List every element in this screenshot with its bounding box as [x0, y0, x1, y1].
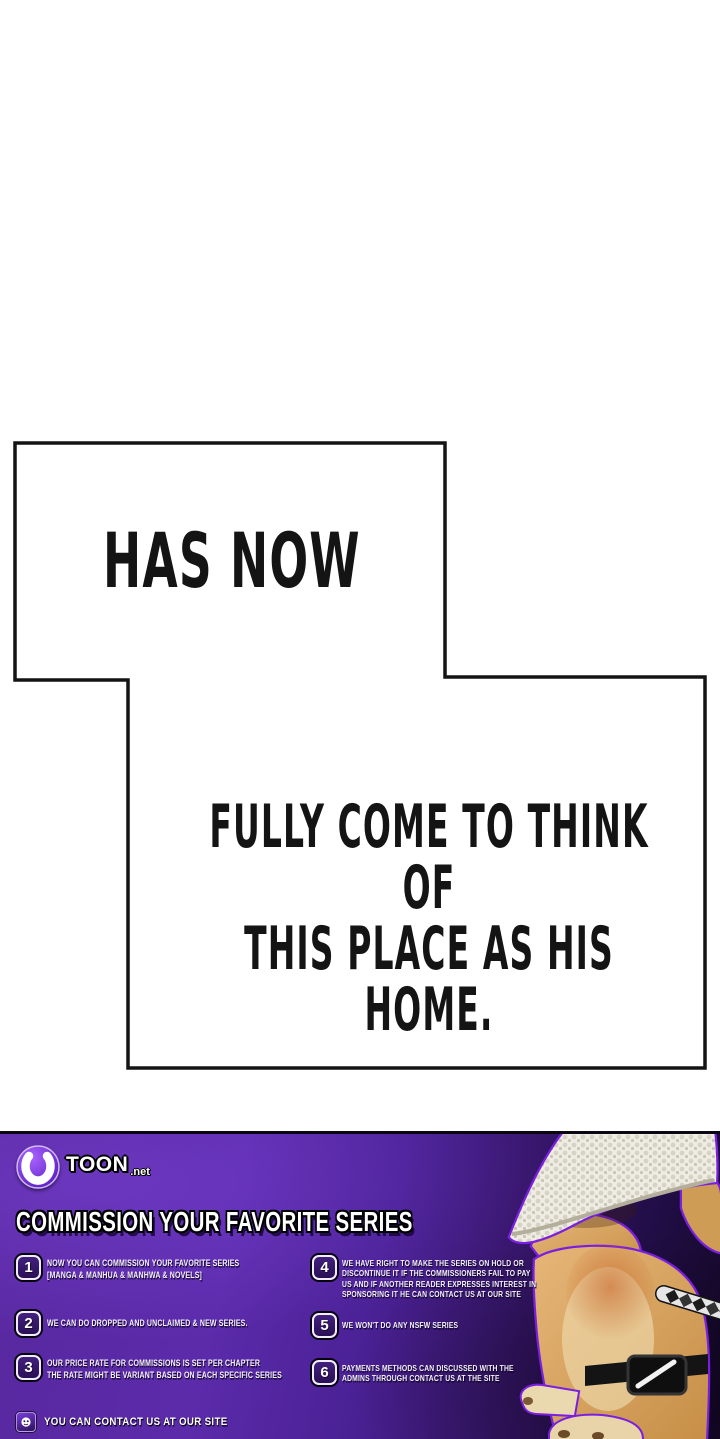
toon-logo-icon[interactable]: [16, 1145, 60, 1189]
contact-text: YOU CAN CONTACT US AT OUR SITE: [44, 1416, 228, 1428]
comic-page: HAS NOW FULLY COME TO THINK OF THIS PLAC…: [0, 0, 720, 1439]
rule-text-6: PAYMENTS METHODS CAN DISCUSSED WITH THE …: [342, 1363, 606, 1384]
rule-badge-2: 2: [16, 1311, 41, 1336]
rule-badge-6: 6: [312, 1360, 337, 1385]
brand-name: TOON: [66, 1153, 128, 1177]
rule-text-4: WE HAVE RIGHT TO MAKE THE SERIES ON HOLD…: [342, 1258, 606, 1300]
foot-toe-1: [558, 1430, 570, 1438]
speech-text-has-now: HAS NOW: [103, 521, 361, 601]
paw-toe: [523, 1397, 533, 1405]
commission-banner[interactable]: TOON .net COMMISSION YOUR FAVORITE SERIE…: [0, 1131, 720, 1439]
contact-row[interactable]: YOU CAN CONTACT US AT OUR SITE: [16, 1412, 253, 1432]
rule-text-5: WE WON'T DO ANY NSFW SERIES: [342, 1320, 606, 1330]
brand-wordmark[interactable]: TOON .net: [66, 1153, 150, 1177]
rule-badge-1: 1: [16, 1255, 41, 1280]
rule-badge-5: 5: [312, 1313, 337, 1338]
mascot-icon: [16, 1412, 36, 1432]
brand-tld: .net: [130, 1166, 150, 1178]
banner-heading: COMMISSION YOUR FAVORITE SERIES: [16, 1206, 483, 1238]
speech-text-home: FULLY COME TO THINK OF THIS PLACE AS HIS…: [193, 797, 666, 1041]
rule-badge-3: 3: [16, 1355, 41, 1380]
rule-badge-4: 4: [312, 1255, 337, 1280]
